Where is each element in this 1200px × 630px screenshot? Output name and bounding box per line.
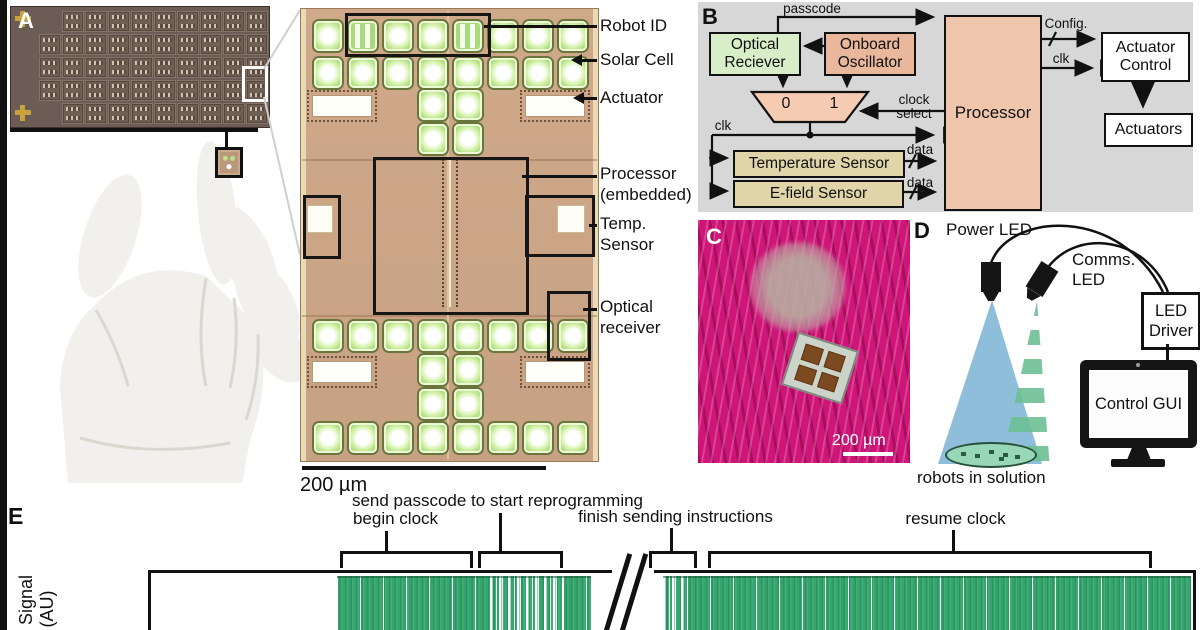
bracket-tick [1149,551,1152,568]
led-driver-box: LEDDriver [1141,292,1200,350]
solar-cell [349,321,377,351]
sample-dish [945,442,1037,468]
glove-hand-photo [10,138,300,483]
solar-cell [349,423,377,453]
solar-cell [454,389,482,419]
bracket-tick [478,551,481,568]
tissue-blob [750,242,846,332]
plot-left-border [148,570,151,630]
robot-id-outline [345,13,491,57]
solar-cell [314,58,342,88]
callout-label: Temp.Sensor [600,213,654,255]
solar-cell [419,423,447,453]
chip-micrograph [300,8,599,462]
solar-cell [419,321,447,351]
solar-cell [489,321,517,351]
mux-input-0: 0 [778,97,794,111]
callout-arrow [573,92,584,104]
dish-caption: robots in solution [917,468,1046,488]
solar-cell [314,423,342,453]
bracket-tick [470,551,473,568]
panel-e-label: E [8,503,23,530]
solar-cell [384,58,412,88]
solar-cell [454,423,482,453]
wafer-connector-line [10,128,258,132]
temperature-sensor-box: Temperature Sensor [733,150,905,178]
plot-right-border [1193,570,1196,630]
solar-cell [419,389,447,419]
axis-break-mask [612,568,654,575]
bracket-stem [385,531,388,551]
config-label: Config. [1040,17,1092,31]
onboard-oscillator-box: OnboardOscillator [824,32,916,76]
webcam-dot-icon [1136,363,1140,367]
processor-box: Processor [944,15,1042,211]
mux-input-1: 1 [826,97,842,111]
solar-cell [314,321,342,351]
actuator-control-box: ActuatorControl [1101,32,1190,82]
bracket-stem [670,528,673,551]
bracket-tick [649,551,652,568]
plot-top-border [148,570,1196,573]
solar-cell [454,355,482,385]
callout-line [589,224,597,227]
callout-label: Opticalreceiver [600,296,660,338]
bracket-resume [708,551,1152,554]
solar-cell [559,423,587,453]
y-axis-label: D Signal(AU) [16,544,58,630]
solar-cell [419,124,447,154]
callout-label: Actuator [600,87,663,108]
bracket-tick [708,551,711,568]
annotation-finish-sending: finish sending instructions [578,507,773,527]
solar-cell [454,58,482,88]
callout-line [522,175,597,178]
actuator-pad [525,361,585,383]
power-led-icon [981,262,1001,292]
comms-led-label: Comms.LED [1072,250,1135,290]
paper-figure: A [0,0,1200,630]
signal-segment [663,576,687,630]
solar-cell [314,21,342,51]
bracket-stem [499,513,502,551]
solar-cell [384,423,412,453]
data-temp-label: data [902,143,938,157]
passcode-label: passcode [770,2,854,16]
callout-line [582,59,597,62]
signal-segment [687,576,1191,630]
solar-cell [489,423,517,453]
solar-cell [524,58,552,88]
data-efield-label: data [902,176,938,190]
solar-cell [454,90,482,120]
callout-arrow [571,54,582,66]
signal-segment [337,576,490,630]
solar-cell [419,355,447,385]
control-gui-screen: Control GUI [1089,370,1188,438]
callout-line [583,308,597,311]
bracket-passcode [478,551,563,554]
solar-cell [419,90,447,120]
bracket-tick [560,551,563,568]
solar-cell [454,124,482,154]
tissue-scale-bar [843,452,893,456]
annotation-begin-clock: begin clock [338,509,453,529]
micrograph-scale-bar [302,466,546,470]
signal-segment [563,576,591,630]
solar-cell [419,58,447,88]
efield-sensor-box: E-field Sensor [733,180,904,208]
bracket-stem [952,530,955,551]
processor-outline [373,157,529,315]
panel-c-label: C [706,224,722,250]
clock-select-label: clockselect [890,93,938,121]
callout-line [484,25,597,28]
tissue-scale-label: 200 µm [832,432,886,450]
callout-label: Robot ID [600,15,667,36]
solar-cell [349,58,377,88]
bracket-begin [340,551,472,554]
bracket-finish [649,551,697,554]
solar-cell [454,321,482,351]
annotation-resume-clock: resume clock [898,509,1013,529]
callout-line [584,97,597,100]
solar-cell [524,423,552,453]
optical-receiver-outline [547,291,591,361]
clk-right-label: clk [1046,52,1076,66]
chip-on-fingertip [215,147,243,178]
monitor-stand-base [1111,459,1165,467]
sensor-pad [307,205,333,233]
callout-label: Processor(embedded) [600,163,692,205]
optical-receiver-box: OpticalReciever [709,32,801,76]
callout-label: Solar Cell [600,49,674,70]
solar-cell [489,58,517,88]
signal-segment [490,576,563,630]
solar-cell [384,321,412,351]
sensor-pad [557,205,585,233]
actuators-box: Actuators [1104,113,1193,147]
actuator-pad [312,95,372,117]
bracket-tick [694,551,697,568]
actuator-pad [312,361,372,383]
clk-left-label: clk [706,119,740,133]
bracket-tick [340,551,343,568]
